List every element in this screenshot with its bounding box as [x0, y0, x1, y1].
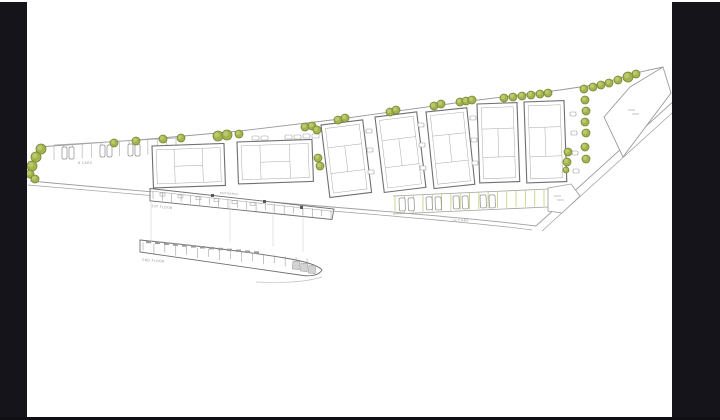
window-dash	[173, 243, 178, 245]
right-parking-rail-bottom	[393, 207, 548, 214]
parked-car	[69, 147, 74, 159]
tree-highlight	[510, 94, 514, 98]
tree-highlight	[582, 119, 586, 123]
tree-highlight	[302, 124, 306, 128]
tree-highlight	[457, 99, 461, 103]
tree-highlight	[438, 101, 442, 105]
tree-highlight	[582, 97, 586, 101]
court	[426, 108, 475, 189]
tree-highlight	[27, 171, 31, 175]
court	[237, 139, 313, 184]
second-floor-ground-line	[256, 277, 322, 282]
tree-highlight	[469, 97, 473, 101]
bench	[471, 138, 477, 142]
core-marker	[300, 206, 303, 209]
bench	[418, 123, 424, 127]
path-object	[294, 135, 301, 139]
window-dash	[218, 248, 223, 250]
window-dash	[209, 247, 214, 249]
courts-layer	[152, 101, 567, 198]
parked-car	[399, 198, 405, 211]
window-dash	[155, 242, 160, 244]
court	[321, 120, 372, 198]
window-dash	[227, 249, 232, 251]
entrance-road-label: ENTRANCE	[220, 191, 239, 196]
tree-highlight	[314, 127, 318, 131]
path-object	[261, 136, 268, 140]
first-floor-strip-outline	[150, 189, 334, 220]
tree-highlight	[564, 168, 567, 171]
tree-highlight	[223, 131, 228, 136]
bench	[368, 170, 374, 174]
parked-car	[435, 197, 441, 210]
left-parking-label: 8 CARS	[78, 161, 92, 165]
tree-highlight	[463, 98, 467, 102]
bench	[420, 166, 426, 170]
tree-highlight	[32, 153, 37, 158]
tree-highlight	[545, 90, 549, 94]
tree-highlight	[501, 95, 505, 99]
tree-highlight	[387, 109, 391, 113]
site-plan-drawing: 8 CARS ENTRANCE 1ST FLOOR 2ND FLOOR 18 C…	[0, 0, 720, 420]
stair-hatch	[308, 265, 316, 274]
second-floor-label: 2ND FLOOR	[142, 258, 165, 264]
tree-highlight	[236, 131, 240, 135]
tree-highlight	[528, 92, 532, 96]
parked-car	[107, 145, 112, 157]
tree-highlight	[342, 115, 346, 119]
path-object	[285, 135, 292, 139]
tree-highlight	[583, 108, 587, 112]
second-floor-strip-outline	[140, 240, 322, 276]
parked-car	[462, 196, 468, 209]
window-dash	[164, 243, 169, 245]
tree-highlight	[309, 123, 313, 127]
tree-highlight	[315, 155, 319, 159]
path-object	[252, 136, 259, 140]
parked-car	[408, 198, 414, 211]
window-dash	[191, 245, 196, 247]
tree-highlight	[598, 82, 602, 86]
bench	[573, 169, 579, 173]
core-marker	[211, 194, 214, 197]
tree-highlight	[537, 91, 541, 95]
parked-car	[128, 144, 133, 156]
tree-highlight	[32, 176, 36, 180]
right-letterbox-bar	[672, 2, 720, 417]
window-dash	[245, 250, 250, 252]
bench	[570, 112, 576, 116]
court	[524, 101, 567, 183]
parked-car	[62, 147, 67, 159]
stair-hatch	[292, 261, 300, 270]
tree-highlight	[564, 159, 568, 163]
tree-highlight	[393, 107, 397, 111]
tree-highlight	[582, 144, 586, 148]
tree-highlight	[214, 132, 219, 137]
bench	[571, 131, 577, 135]
parked-car	[100, 145, 105, 157]
bench	[366, 129, 372, 133]
court	[477, 103, 520, 183]
tree-highlight	[178, 135, 182, 139]
core-marker	[263, 200, 266, 203]
tree-highlight	[633, 71, 637, 75]
parking-end-pentagon	[548, 184, 580, 213]
right-parking-rail-top	[393, 189, 548, 196]
tree-highlight	[431, 103, 435, 107]
window-dash	[146, 241, 151, 243]
tree-highlight	[111, 140, 115, 144]
tree-highlight	[624, 73, 629, 78]
tree-highlight	[606, 80, 610, 84]
bench	[419, 143, 425, 147]
tree-highlight	[615, 77, 619, 81]
parked-car	[489, 195, 495, 208]
tree-highlight	[133, 138, 137, 142]
window-dash	[182, 244, 187, 246]
tree-highlight	[335, 117, 339, 121]
tree-highlight	[590, 84, 594, 88]
tree-highlight	[583, 156, 587, 160]
tree-highlight	[160, 136, 164, 140]
path-object	[312, 134, 319, 138]
right-parking-label: 18 CARS	[452, 218, 469, 223]
stair-hatch	[300, 263, 308, 272]
left-letterbox-bar	[0, 2, 27, 417]
bench	[367, 148, 373, 152]
parked-car	[453, 196, 459, 209]
path-object	[303, 134, 310, 138]
bench	[472, 161, 478, 165]
court	[152, 143, 225, 187]
parked-car	[480, 195, 486, 208]
tree-highlight	[565, 149, 569, 153]
window-dash	[200, 246, 205, 248]
window-dash	[236, 250, 241, 252]
window-dash	[254, 251, 259, 253]
parked-car	[135, 144, 140, 156]
tree-highlight	[317, 163, 321, 167]
parked-car	[426, 197, 432, 210]
bench	[572, 151, 578, 155]
bench	[470, 116, 476, 120]
site-plan-viewer: 8 CARS ENTRANCE 1ST FLOOR 2ND FLOOR 18 C…	[0, 0, 720, 420]
tree-highlight	[581, 86, 585, 90]
tree-highlight	[37, 145, 42, 150]
tree-highlight	[519, 93, 523, 97]
tree-highlight	[583, 130, 587, 134]
tree-highlight	[28, 162, 33, 167]
first-floor-label: 1ST FLOOR	[151, 204, 173, 210]
